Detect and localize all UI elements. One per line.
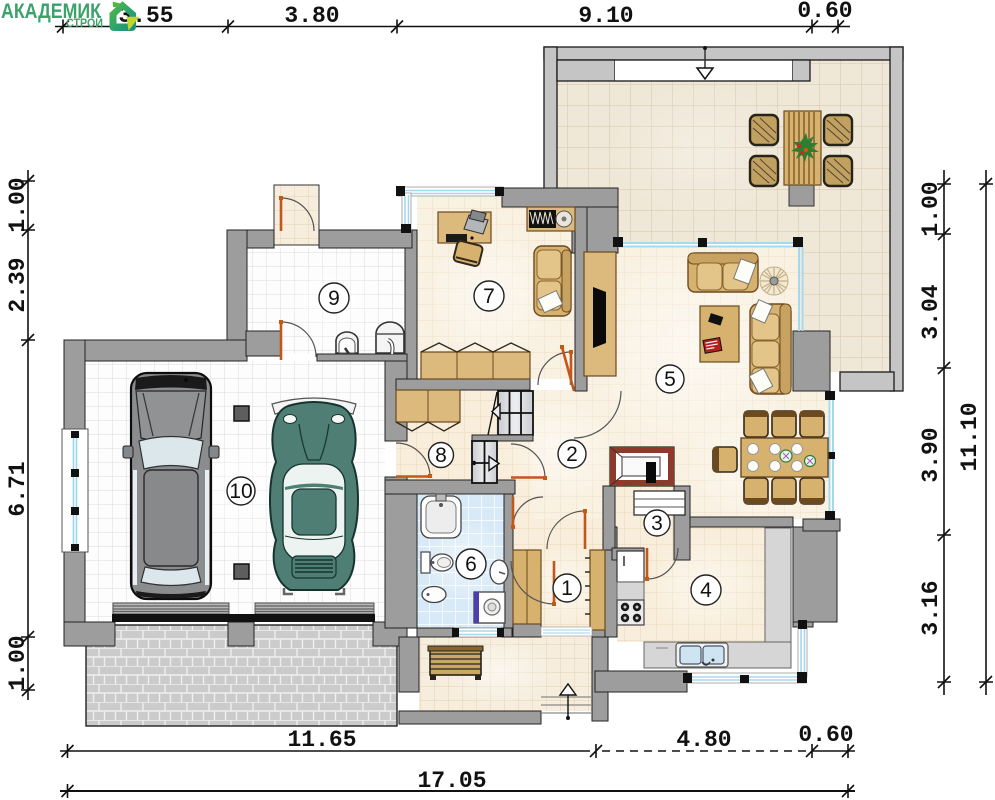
svg-text:3.80: 3.80 bbox=[284, 3, 339, 29]
svg-text:4.80: 4.80 bbox=[676, 727, 731, 753]
svg-text:3: 3 bbox=[651, 512, 663, 535]
svg-text:6.71: 6.71 bbox=[5, 461, 31, 516]
svg-text:9.10: 9.10 bbox=[578, 3, 633, 29]
svg-text:1: 1 bbox=[561, 577, 573, 600]
svg-text:9: 9 bbox=[328, 287, 340, 310]
svg-text:11.65: 11.65 bbox=[287, 727, 356, 753]
svg-text:6: 6 bbox=[465, 553, 477, 576]
svg-text:СТРОЙ: СТРОЙ bbox=[66, 15, 103, 30]
svg-text:0.60: 0.60 bbox=[798, 722, 853, 748]
svg-text:1.00: 1.00 bbox=[918, 181, 944, 236]
svg-text:0.60: 0.60 bbox=[797, 0, 852, 24]
svg-text:4: 4 bbox=[700, 579, 712, 602]
svg-text:5: 5 bbox=[664, 368, 676, 391]
svg-text:1.00: 1.00 bbox=[5, 635, 31, 690]
svg-text:11.10: 11.10 bbox=[957, 402, 983, 471]
svg-text:3.90: 3.90 bbox=[918, 427, 944, 482]
svg-text:7: 7 bbox=[483, 285, 495, 308]
svg-text:3.04: 3.04 bbox=[918, 284, 944, 339]
svg-text:1.00: 1.00 bbox=[5, 177, 31, 232]
svg-text:8: 8 bbox=[435, 444, 447, 467]
svg-text:2: 2 bbox=[566, 443, 578, 466]
svg-text:17.05: 17.05 bbox=[417, 768, 486, 794]
svg-text:10: 10 bbox=[229, 480, 252, 503]
svg-text:2.39: 2.39 bbox=[5, 257, 31, 312]
svg-text:3.16: 3.16 bbox=[918, 580, 944, 635]
